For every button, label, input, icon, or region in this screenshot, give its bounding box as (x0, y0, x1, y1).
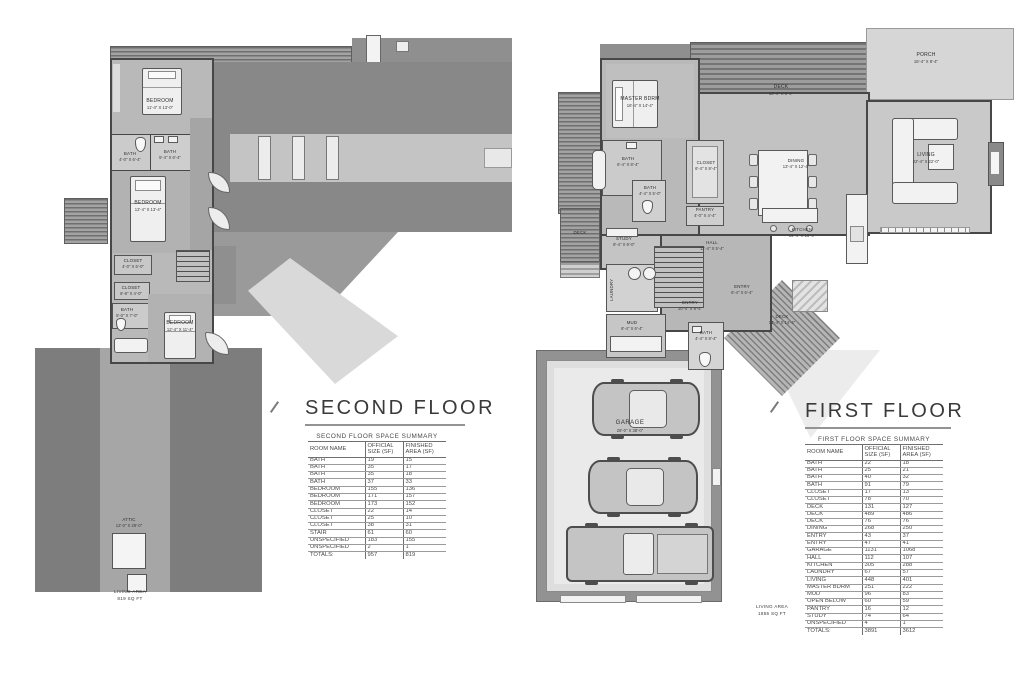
table-cell: STAIR (308, 530, 365, 537)
table-cell: LIVING (805, 577, 862, 584)
table-cell: ENTRY (805, 540, 862, 547)
entry-steps (792, 280, 828, 312)
table-row: OPEN BELOW6059 (805, 599, 943, 606)
table-cell: 35 (365, 472, 403, 479)
table-cell: 305 (862, 562, 900, 569)
table-row: GARAGE11311068 (805, 548, 943, 555)
stairs (654, 246, 704, 308)
table-cell: 136 (403, 486, 446, 493)
title-rule (305, 424, 465, 426)
col-header-official-size: OFFICIAL SIZE (SF) (365, 442, 403, 457)
table-header-row: ROOM NAME OFFICIAL SIZE (SF) FINISHED AR… (805, 445, 943, 460)
table-row: BATH1915 (308, 457, 446, 464)
table-cell: 47 (862, 540, 900, 547)
room-label-entry: ENTRY10'-4" X 6'-4" (668, 300, 712, 311)
sink (626, 142, 637, 149)
table-row: BATH3517 (308, 464, 446, 471)
table-cell: 3891 (862, 628, 900, 635)
table-row: KITCHEN305288 (805, 562, 943, 569)
table-row: MUD9683 (805, 591, 943, 598)
table-cell: MASTER BDRM (805, 584, 862, 591)
mud-bench (610, 336, 662, 352)
table-cell: 157 (403, 493, 446, 500)
table-cell: 43 (862, 533, 900, 540)
table-cell: ENTRY (805, 533, 862, 540)
dryer (643, 267, 656, 280)
table-cell: BATH (308, 472, 365, 479)
table-body: BATH2218BATH2521BATH4032BATH9179CLOSET17… (805, 460, 943, 635)
table-cell: 10 (403, 515, 446, 522)
table-cell: 173 (365, 501, 403, 508)
room-label-bath: BATH5'-0" X 7'-0" (112, 307, 142, 318)
table-cell: 22 (862, 460, 900, 467)
col-header-room-name: ROOM NAME (805, 445, 862, 460)
table-cell: 957 (365, 552, 403, 559)
table-row: UNSPECIFIED41 (805, 621, 943, 628)
table-cell: 14 (403, 508, 446, 515)
table-cell: LAUNDRY (805, 569, 862, 576)
table-cell: BEDROOM (308, 501, 365, 508)
table-cell: TOTALS: (805, 628, 862, 635)
chair (749, 176, 758, 188)
room-label-closet: CLOSET4'-0" X 6'-0" (116, 258, 150, 269)
table-cell: 489 (862, 511, 900, 518)
table-cell: 222 (900, 584, 943, 591)
table-row: STAIR6160 (308, 530, 446, 537)
table-cell: MUD (805, 591, 862, 598)
window-bay (113, 64, 120, 112)
room-label-bedroom: BEDROOM12'-4" X 13'-4" (120, 200, 176, 212)
table-cell: 183 (365, 537, 403, 544)
table-cell: 1068 (900, 548, 943, 555)
table-cell: 79 (900, 482, 943, 489)
garage-door (560, 595, 626, 603)
range (850, 226, 864, 242)
table-cell: 4 (862, 621, 900, 628)
table-row: DECK489486 (805, 511, 943, 518)
sofa (892, 182, 958, 204)
table-cell: UNSPECIFIED (308, 537, 365, 544)
side-door (712, 468, 721, 486)
table-row: BEDROOM155136 (308, 486, 446, 493)
table-cell: 78 (862, 496, 900, 503)
table-cell: 17 (403, 464, 446, 471)
title-rule (805, 427, 951, 429)
table-row: TOTALS:38913612 (805, 628, 943, 635)
table-cell: BATH (308, 457, 365, 464)
table-row: ENTRY4337 (805, 533, 943, 540)
chair (808, 176, 817, 188)
room-label-pantry: PANTRY4'-0" X 4'-4" (686, 207, 724, 218)
table-cell: 1 (900, 621, 943, 628)
table-row: BEDROOM173152 (308, 501, 446, 508)
table-cell: 61 (365, 530, 403, 537)
first-floor-title: FIRST FLOOR (805, 400, 964, 423)
table-cell: 37 (900, 533, 943, 540)
table-cell: 1131 (862, 548, 900, 555)
chair (749, 198, 758, 210)
table-body: BATH1915BATH3517BATH3518BATH3733BEDROOM1… (308, 457, 446, 559)
table-row: LIVING448401 (805, 577, 943, 584)
table-cell: 19 (365, 457, 403, 464)
table-cell: 96 (862, 591, 900, 598)
room-label-bedroom: BEDROOM11'-4" X 13'-0" (132, 98, 188, 110)
chair (749, 154, 758, 166)
table-cell: BEDROOM (308, 486, 365, 493)
table-row: CLOSET7870 (805, 496, 943, 503)
table-cell: 67 (862, 569, 900, 576)
table-cell: 70 (900, 496, 943, 503)
table-cell: 251 (862, 584, 900, 591)
garage-door (636, 595, 702, 603)
table-cell: 32 (900, 475, 943, 482)
table-caption: FIRST FLOOR SPACE SUMMARY (805, 436, 943, 445)
room-label-dining: DINING13'-4" X 12'-4" (776, 158, 816, 169)
table-cell: 155 (365, 486, 403, 493)
room-label-master-bdrm: MASTER BDRM16'-4" X 14'-4" (612, 96, 668, 108)
table-cell: 171 (365, 493, 403, 500)
stair-bay (212, 246, 236, 304)
car (588, 460, 698, 514)
second-floor-summary-table: SECOND FLOOR SPACE SUMMARY ROOM NAME OFF… (308, 433, 446, 559)
table-row: CLOSET3831 (308, 523, 446, 530)
table-row: HALL112107 (805, 555, 943, 562)
table-cell: 21 (900, 467, 943, 474)
table-cell: 16 (862, 606, 900, 613)
window-row (880, 227, 970, 233)
room-label-bath: BATH4'-4" X 8'-4" (688, 330, 724, 341)
window-seat (114, 338, 148, 353)
table-cell: CLOSET (308, 523, 365, 530)
table-cell: UNSPECIFIED (805, 621, 862, 628)
room-label-porch: PORCH16'-4" X 8'-4" (896, 52, 956, 64)
stairs (176, 250, 210, 282)
room-label-garage: GARAGE28'-0" X 38'-0" (598, 420, 662, 433)
table-cell: CLOSET (805, 489, 862, 496)
fireplace-insert (991, 152, 999, 174)
table-cell: 152 (403, 501, 446, 508)
floor-plan-sheet: BEDROOM11'-4" X 13'-0" BATH4'-0" X 6'-4"… (0, 0, 1024, 692)
table-cell: 31 (403, 523, 446, 530)
table-cell: 38 (365, 523, 403, 530)
table-row: CLOSET2510 (308, 515, 446, 522)
table-row: DECK7676 (805, 518, 943, 525)
table-cell: 15 (403, 457, 446, 464)
sink (168, 136, 178, 143)
table-cell: HALL (805, 555, 862, 562)
table-cell: BATH (805, 467, 862, 474)
table-cell: 35 (365, 464, 403, 471)
table-row: BATH2218 (805, 460, 943, 467)
table-cell: 33 (403, 479, 446, 486)
table-cell: 40 (862, 475, 900, 482)
table-row: BEDROOM171157 (308, 493, 446, 500)
table-cell: 155 (403, 537, 446, 544)
table-cell: 112 (862, 555, 900, 562)
table-row: DECK131127 (805, 504, 943, 511)
room-label-bedroom: BEDROOM12'-4" X 11'-4" (152, 320, 208, 332)
stool (770, 225, 777, 232)
table-cell: 25 (365, 515, 403, 522)
table-cell: 268 (862, 526, 900, 533)
table-cell: GARAGE (805, 548, 862, 555)
table-row: PANTRY1612 (805, 606, 943, 613)
room-label-attic: ATTIC12'-0" X 28'-0" (100, 517, 158, 528)
second-floor-title: SECOND FLOOR (305, 397, 495, 420)
room-label-living: LIVING22'-4" X 22'-0" (898, 152, 954, 164)
table-row: STUDY7464 (805, 613, 943, 620)
table-row: BATH3733 (308, 479, 446, 486)
table-row: CLOSET1713 (805, 489, 943, 496)
table-cell: CLOSET (805, 496, 862, 503)
porch-floor (866, 28, 1014, 100)
room-label-bath: BATH4'-4" X 5'-0" (634, 185, 666, 196)
table-cell: 17 (862, 489, 900, 496)
room-label-deck: DECK (562, 230, 598, 236)
table-cell: 76 (900, 518, 943, 525)
kitchen-island (762, 208, 818, 223)
table-row: DINING268250 (805, 526, 943, 533)
table-row: TOTALS:957819 (308, 552, 446, 559)
table-row: CLOSET2214 (308, 508, 446, 515)
table-row: BATH2521 (805, 467, 943, 474)
table-cell: 131 (862, 504, 900, 511)
table-row: BATH4032 (805, 475, 943, 482)
table-cell: 13 (900, 489, 943, 496)
table-header-row: ROOM NAME OFFICIAL SIZE (SF) FINISHED AR… (308, 442, 446, 457)
first-floor-summary-table: FIRST FLOOR SPACE SUMMARY ROOM NAME OFFI… (805, 436, 943, 635)
table-cell: 41 (900, 540, 943, 547)
table-cell: 18 (900, 460, 943, 467)
table-cell: 1 (403, 545, 446, 552)
table-cell: BATH (805, 482, 862, 489)
table-cell: BEDROOM (308, 493, 365, 500)
room-label-kitchen: KITCHEN15'-4" X 13'-4" (778, 227, 826, 238)
room-label-mud: MUD8'-4" X 6'-4" (612, 320, 652, 331)
table-cell: 819 (403, 552, 446, 559)
table-cell: BATH (308, 464, 365, 471)
table-row: LAUNDRY6757 (805, 569, 943, 576)
table-cell: STUDY (805, 613, 862, 620)
table-cell: CLOSET (308, 515, 365, 522)
room-label-hall: HALL11'-4" X 5'-4" (692, 240, 732, 251)
table-cell: 60 (862, 599, 900, 606)
table-cell: DECK (805, 518, 862, 525)
table-cell: 83 (900, 591, 943, 598)
table-cell: 37 (365, 479, 403, 486)
col-header-finished-area: FINISHED AREA (SF) (900, 445, 943, 460)
room-label-deck: DECK14'-4" X 14'-4" (756, 314, 808, 325)
table-row: UNSPECIFIED21 (308, 545, 446, 552)
room-label-bath: BATH5'-4" X 6'-4" (152, 149, 188, 160)
table-row: ENTRY4741 (805, 540, 943, 547)
room-label-closet: CLOSET6'-8" X 4'-0" (114, 285, 148, 296)
table-cell: OPEN BELOW (805, 599, 862, 606)
table-cell: 250 (900, 526, 943, 533)
table-cell: 18 (403, 472, 446, 479)
table-cell: 57 (900, 569, 943, 576)
living-area-note: LIVING AREA1855 SQ FT (740, 604, 804, 618)
table-cell: 60 (403, 530, 446, 537)
table-cell: PANTRY (805, 606, 862, 613)
room-label-study: STUDY8'-4" X 9'-0" (602, 236, 646, 247)
table-cell: CLOSET (308, 508, 365, 515)
pickup-truck (566, 526, 714, 582)
table-caption: SECOND FLOOR SPACE SUMMARY (308, 433, 446, 442)
room-label-laundry: LAUNDRY (609, 270, 619, 310)
table-cell: 25 (862, 467, 900, 474)
hall-strip (190, 118, 212, 250)
table-cell: DECK (805, 504, 862, 511)
table-cell: UNSPECIFIED (308, 545, 365, 552)
table-cell: 64 (900, 613, 943, 620)
leader-tick (770, 401, 779, 413)
room-label-deck: DECK18'-4" X 8'-4" (750, 84, 812, 96)
left-deck-steps (560, 262, 600, 278)
table-row: BATH9179 (805, 482, 943, 489)
table-cell: 22 (365, 508, 403, 515)
closet-shelving (692, 146, 718, 198)
table-cell: 401 (900, 577, 943, 584)
table-row: BATH3518 (308, 472, 446, 479)
table-cell: 3612 (900, 628, 943, 635)
table-row: MASTER BDRM251222 (805, 584, 943, 591)
table-cell: 2 (365, 545, 403, 552)
table-cell: 486 (900, 511, 943, 518)
table-cell: TOTALS: (308, 552, 365, 559)
room-label-entry: ENTRY6'-4" X 6'-4" (720, 284, 764, 295)
room-label-bath: BATH6'-4" X 8'-4" (608, 156, 648, 167)
table-cell: 127 (900, 504, 943, 511)
room-label-bath: BATH4'-0" X 6'-4" (112, 151, 148, 162)
washer (628, 267, 641, 280)
table-cell: DINING (805, 526, 862, 533)
table-cell: BATH (805, 460, 862, 467)
col-header-room-name: ROOM NAME (308, 442, 365, 457)
table-cell: 107 (900, 555, 943, 562)
table-cell: 76 (862, 518, 900, 525)
table-cell: BATH (805, 475, 862, 482)
col-header-finished-area: FINISHED AREA (SF) (403, 442, 446, 457)
table-cell: 288 (900, 562, 943, 569)
table-cell: BATH (308, 479, 365, 486)
table-row: UNSPECIFIED183155 (308, 537, 446, 544)
table-cell: 448 (862, 577, 900, 584)
bathtub (592, 150, 606, 190)
table-cell: DECK (805, 511, 862, 518)
table-cell: 91 (862, 482, 900, 489)
sink (154, 136, 164, 143)
table-cell: 12 (900, 606, 943, 613)
table-cell: 59 (900, 599, 943, 606)
room-label-closet: CLOSET6'-4" X 8'-4" (690, 160, 722, 171)
col-header-official-size: OFFICIAL SIZE (SF) (862, 445, 900, 460)
table-cell: KITCHEN (805, 562, 862, 569)
table-cell: 74 (862, 613, 900, 620)
